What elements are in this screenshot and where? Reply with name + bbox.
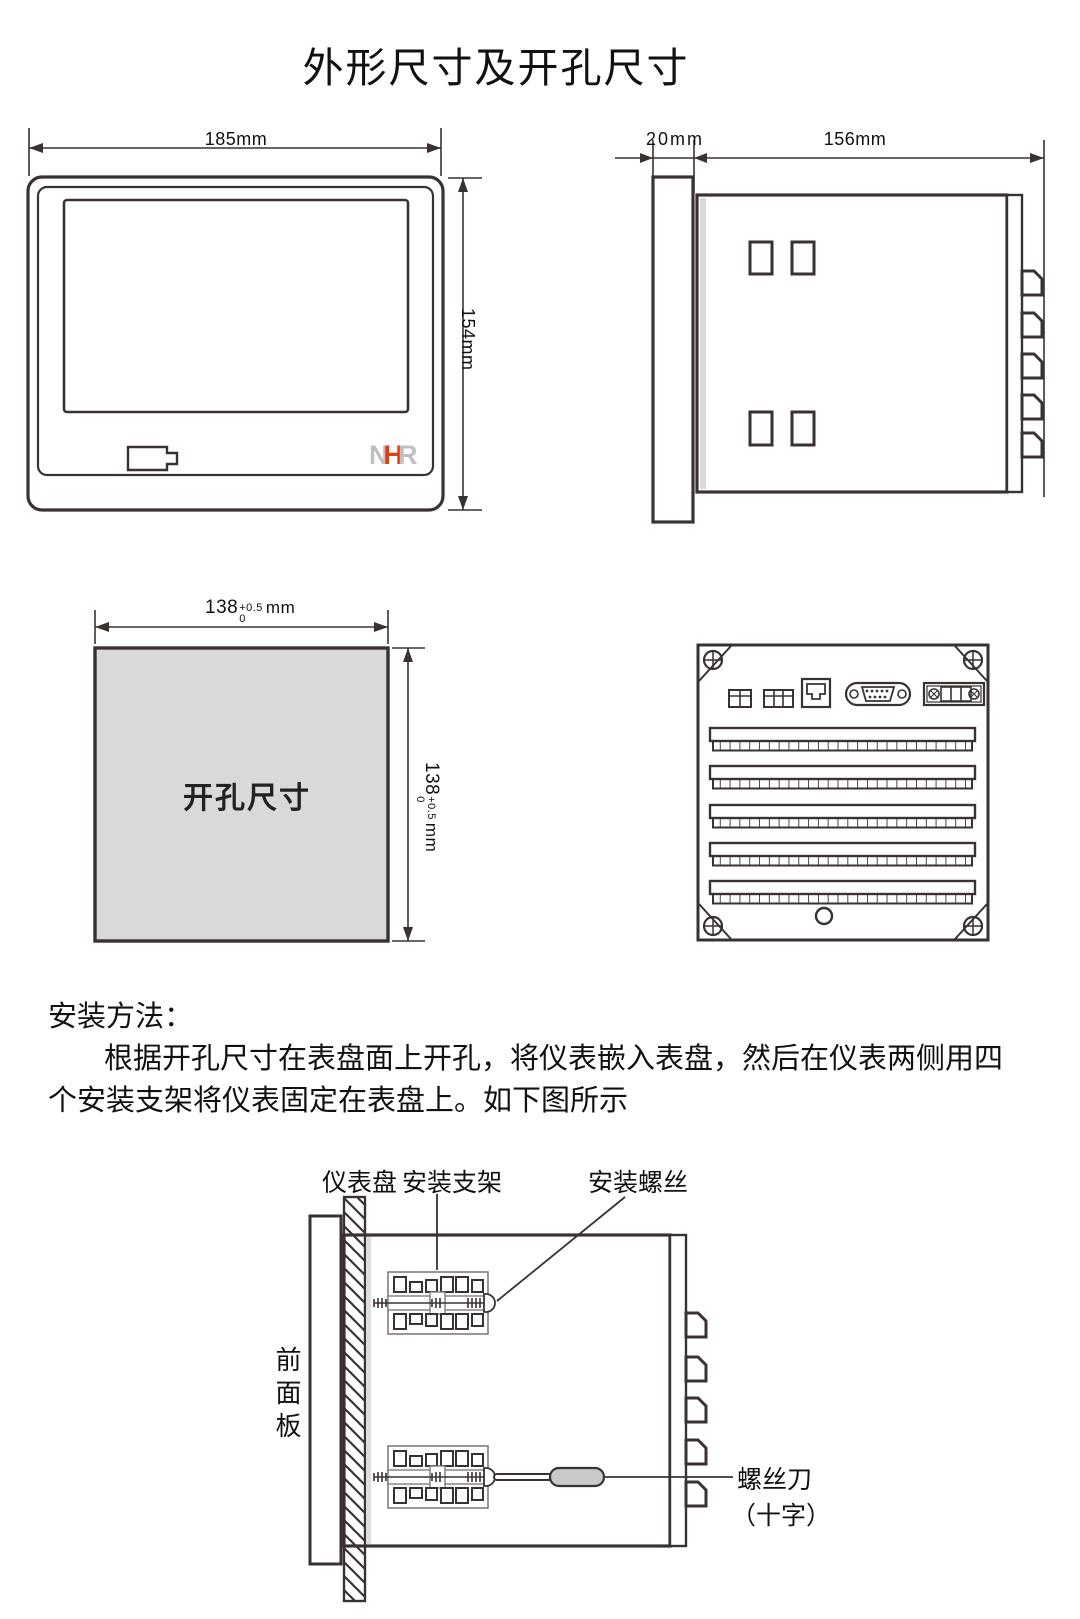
cutout-unit: mm (266, 598, 295, 617)
install-paragraph-line2: 个安装支架将仪表固定在表盘上。如下图所示 (48, 1080, 628, 1122)
terminal-3pin-icon (764, 690, 793, 707)
rj45-port-icon (802, 679, 830, 707)
page-title: 外形尺寸及开孔尺寸 (0, 34, 992, 94)
mounting-bracket-top (374, 1272, 495, 1334)
cutout-width-label: 138+0.50mm (205, 597, 295, 625)
db9-port-icon (846, 683, 910, 705)
nhr-logo: NHR (369, 440, 413, 471)
screw-leader-line (497, 1197, 625, 1301)
screwdriver-type-label: （十字） (731, 1496, 831, 1532)
install-heading: 安装方法： (48, 996, 193, 1038)
front-panel (310, 1216, 341, 1564)
screwdriver-icon (494, 1468, 604, 1486)
cutout-area-label: 开孔尺寸 (183, 773, 311, 817)
front-view-drawing (28, 128, 482, 510)
front-height-label: 154mm (457, 308, 478, 371)
manual-page: 外形尺寸及开孔尺寸 185mm 154mm NHR 20mm 156mm 138… (0, 0, 1080, 1619)
cutout-height-value: 138 (421, 762, 442, 795)
cutout-height-label: 138+0.50mm (414, 762, 442, 852)
logo-letter-r: R (398, 440, 413, 470)
terminal-2pin-icon (729, 690, 751, 707)
mounting-bracket-bottom (374, 1446, 495, 1508)
side-view-drawing (615, 140, 1044, 522)
bracket-label: 安装支架 (402, 1163, 502, 1199)
rear-hole-icon (816, 908, 832, 924)
screw-label: 安装螺丝 (588, 1163, 688, 1199)
screwdriver-label: 螺丝刀 (737, 1460, 812, 1496)
side-depth-label: 20mm (646, 129, 700, 150)
front-panel-label: 前面板 (268, 1346, 305, 1445)
cutout-tol-lower: 0 (239, 614, 246, 625)
cutout-width-value: 138 (205, 597, 238, 618)
front-width-label: 185mm (198, 129, 274, 150)
side-length-label: 156mm (820, 129, 890, 150)
logo-letter-h: H (384, 440, 399, 470)
rear-view-drawing (698, 645, 988, 940)
panel-label: 仪表盘 (322, 1163, 397, 1199)
logo-letter-n: N (369, 440, 384, 470)
power-terminal-icon (924, 683, 984, 705)
install-paragraph-line1: 根据开孔尺寸在表盘面上开孔，将仪表嵌入表盘，然后在仪表两侧用四 (104, 1038, 1003, 1080)
technical-drawing (0, 0, 1080, 1619)
instrument-panel-hatch (344, 1197, 365, 1601)
install-diagram-drawing (310, 1194, 733, 1601)
